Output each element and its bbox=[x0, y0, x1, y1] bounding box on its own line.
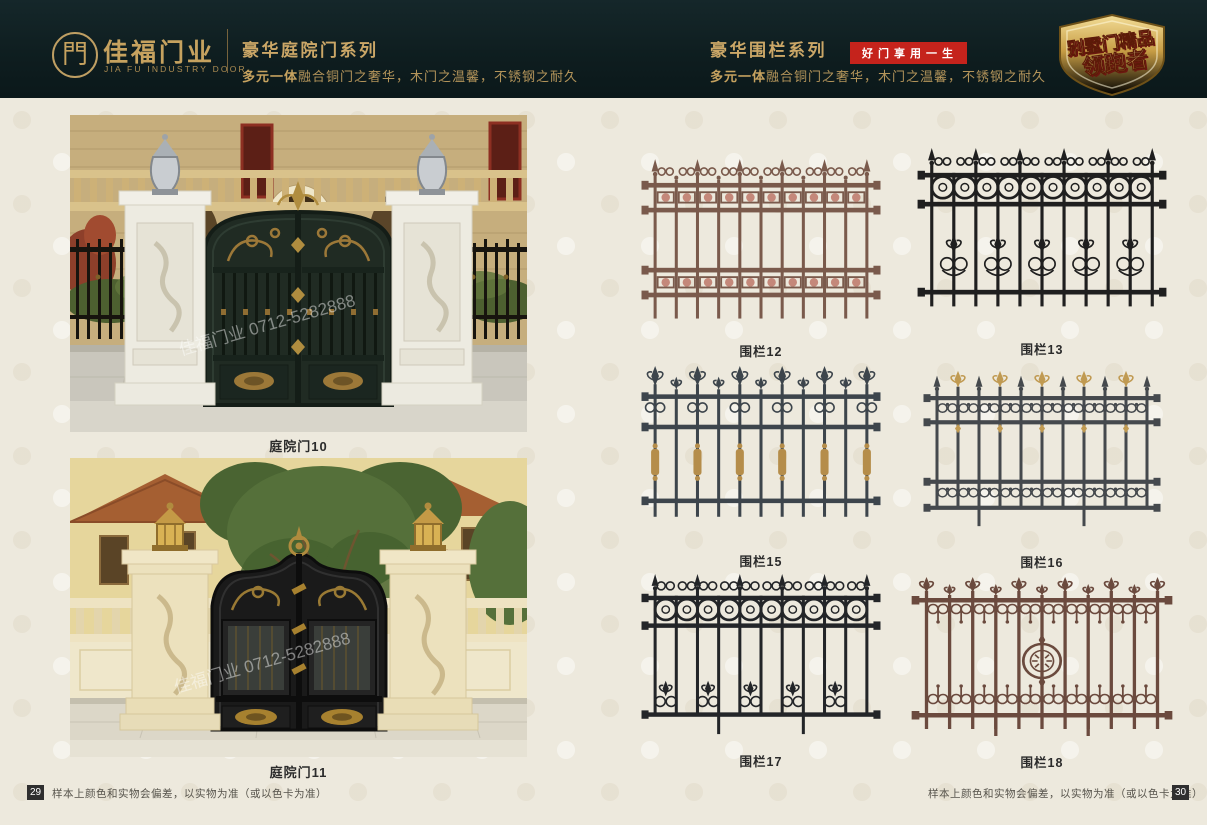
header-band: 門 佳福门业 JIA FU INDUSTRY DOOR 豪华庭院门系列 多元一体… bbox=[0, 0, 1207, 98]
series-subtitle-left: 多元一体融合铜门之奢华，木门之温馨，不锈钢之耐久 bbox=[242, 66, 578, 85]
premium-shield-icon: 别墅门精品 别墅门精品 领跑者 领跑者 bbox=[1048, 11, 1180, 99]
subtitle-rest: 融合铜门之奢华，木门之温馨，不锈钢之耐久 bbox=[766, 69, 1046, 84]
subtitle-emphasis: 多元一体 bbox=[242, 69, 298, 84]
page-number-left: 29 bbox=[27, 785, 44, 800]
color-note-left: 样本上颜色和实物会偏差，以实物为准（或以色卡为准） bbox=[52, 786, 327, 801]
page-number-right: 30 bbox=[1172, 785, 1189, 800]
fence-caption: 围栏13 bbox=[916, 339, 1168, 358]
fence-caption: 围栏18 bbox=[910, 752, 1174, 771]
fence-caption: 围栏15 bbox=[640, 551, 882, 570]
series-title-left: 豪华庭院门系列 bbox=[242, 36, 578, 61]
fence-image bbox=[910, 576, 1174, 746]
fence-caption: 围栏17 bbox=[640, 751, 882, 770]
photo-caption: 庭院门11 bbox=[70, 762, 527, 781]
fence-caption: 围栏16 bbox=[922, 552, 1162, 571]
header-divider bbox=[227, 29, 228, 73]
fence-image bbox=[640, 364, 882, 536]
subtitle-rest: 融合铜门之奢华，木门之温馨，不锈钢之耐久 bbox=[298, 69, 578, 84]
fence-image bbox=[640, 574, 882, 742]
series-header-left: 豪华庭院门系列 多元一体融合铜门之奢华，木门之温馨，不锈钢之耐久 bbox=[242, 36, 578, 85]
color-note-right: 样本上颜色和实物会偏差，以实物为准（或以色卡为准） bbox=[928, 786, 1164, 801]
series-subtitle-right: 多元一体融合铜门之奢华，木门之温馨，不锈钢之耐久 bbox=[710, 66, 1046, 85]
subtitle-emphasis: 多元一体 bbox=[710, 69, 766, 84]
page-body: 佳福门业 0712-5282888 庭院门10 bbox=[0, 98, 1207, 825]
catalog-spread: 門 佳福门业 JIA FU INDUSTRY DOOR 豪华庭院门系列 多元一体… bbox=[0, 0, 1207, 825]
courtyard-gate-photo-10: 佳福门业 0712-5282888 bbox=[70, 115, 527, 432]
fence-caption: 围栏12 bbox=[640, 341, 882, 360]
brand-name-en: JIA FU INDUSTRY DOOR bbox=[104, 64, 247, 74]
fence-image bbox=[916, 148, 1168, 324]
door-glyph-logo-icon: 門 bbox=[52, 32, 98, 78]
photo-caption: 庭院门10 bbox=[70, 436, 527, 455]
fence-image bbox=[922, 370, 1162, 528]
fence-image bbox=[640, 156, 882, 332]
quality-slogan-badge: 好门享用一生 bbox=[850, 42, 967, 64]
courtyard-gate-photo-11: 佳福门业 0712-5282888 bbox=[70, 458, 527, 757]
